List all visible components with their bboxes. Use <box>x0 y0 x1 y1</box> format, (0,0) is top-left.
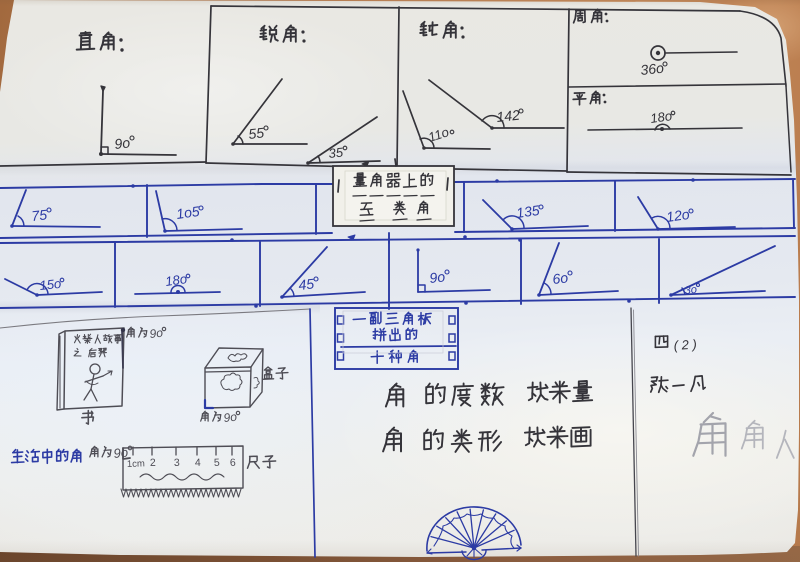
svg-text:4: 4 <box>195 457 201 469</box>
svg-text:75: 75 <box>31 206 48 224</box>
svg-text:12o: 12o <box>665 206 691 225</box>
svg-text:3o: 3o <box>684 284 697 297</box>
svg-text:6o: 6o <box>552 269 569 287</box>
svg-text:135: 135 <box>515 202 541 221</box>
svg-text:55: 55 <box>248 124 265 142</box>
svg-text:18o: 18o <box>649 108 673 126</box>
svg-text:5: 5 <box>214 457 220 469</box>
svg-text:9o: 9o <box>149 326 164 341</box>
svg-text:35: 35 <box>328 144 345 161</box>
svg-text:( 2 ): ( 2 ) <box>673 336 697 353</box>
svg-text:142: 142 <box>496 107 521 125</box>
svg-text:15o: 15o <box>39 276 62 293</box>
svg-text:36o: 36o <box>640 60 665 78</box>
svg-text:18o: 18o <box>164 271 188 289</box>
svg-text:11o: 11o <box>426 124 450 145</box>
svg-text:9o: 9o <box>114 134 131 152</box>
svg-text:9o: 9o <box>429 268 446 286</box>
svg-text:6: 6 <box>230 457 236 469</box>
svg-text:9o: 9o <box>223 410 238 425</box>
svg-text:1o5: 1o5 <box>175 203 201 222</box>
svg-text:1cm: 1cm <box>127 458 145 470</box>
svg-text:45: 45 <box>298 275 315 293</box>
svg-text:3: 3 <box>174 457 180 469</box>
svg-text:2: 2 <box>150 457 156 469</box>
